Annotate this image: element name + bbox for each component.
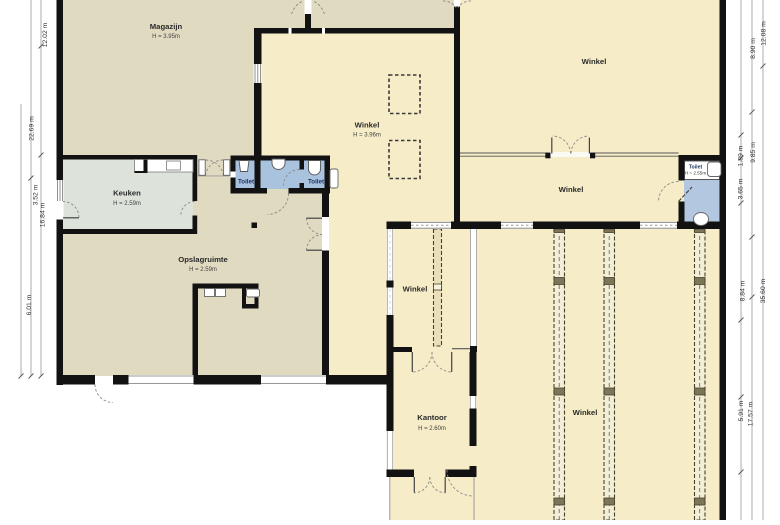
svg-text:17.57 m: 17.57 m xyxy=(748,401,755,426)
svg-text:H = 2.59m: H = 2.59m xyxy=(189,267,217,273)
svg-text:Toilet: Toilet xyxy=(308,179,324,186)
svg-text:8.90 m: 8.90 m xyxy=(750,38,757,59)
svg-text:6.01 m: 6.01 m xyxy=(26,294,33,315)
svg-text:1.89 m: 1.89 m xyxy=(738,145,745,166)
svg-text:22.69 m: 22.69 m xyxy=(29,116,36,141)
svg-text:35.60 m: 35.60 m xyxy=(760,278,767,303)
svg-text:H = 3.96m: H = 3.96m xyxy=(353,133,381,139)
svg-text:5.91 m: 5.91 m xyxy=(738,400,745,421)
svg-text:Magazijn: Magazijn xyxy=(150,22,183,31)
svg-text:Winkel: Winkel xyxy=(355,121,380,130)
svg-text:3.52 m: 3.52 m xyxy=(33,184,40,205)
svg-text:Winkel: Winkel xyxy=(573,408,598,417)
svg-text:Keuken: Keuken xyxy=(113,189,141,198)
svg-text:Winkel: Winkel xyxy=(582,57,607,66)
svg-text:H = 2.59m: H = 2.59m xyxy=(113,201,141,207)
svg-text:12.02 m: 12.02 m xyxy=(42,22,49,47)
svg-text:16.84 m: 16.84 m xyxy=(40,202,47,227)
svg-text:12.08 m: 12.08 m xyxy=(761,21,768,46)
svg-text:Winkel: Winkel xyxy=(559,185,584,194)
svg-text:3.65 m: 3.65 m xyxy=(738,178,745,199)
svg-text:Opslagruimte: Opslagruimte xyxy=(178,255,228,264)
svg-text:H = 2.55m: H = 2.55m xyxy=(685,171,706,176)
svg-text:Kantoor: Kantoor xyxy=(417,413,446,422)
svg-text:H = 2.60m: H = 2.60m xyxy=(418,426,446,432)
svg-text:Winkel: Winkel xyxy=(403,285,428,294)
svg-text:9.85 m: 9.85 m xyxy=(750,142,757,163)
svg-text:H = 3.95m: H = 3.95m xyxy=(152,34,180,40)
svg-text:Toilet: Toilet xyxy=(238,179,254,186)
svg-text:8.84 m: 8.84 m xyxy=(740,280,747,301)
